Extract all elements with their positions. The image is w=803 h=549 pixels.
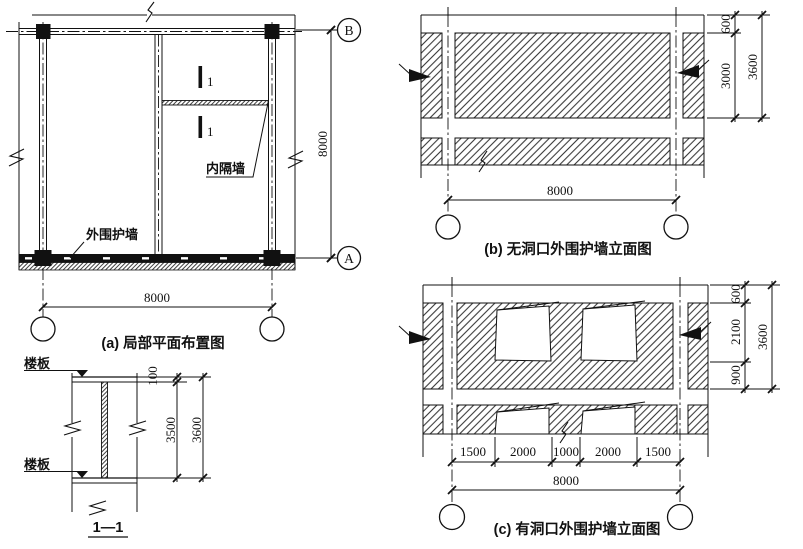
dim-c-below-window: 900 <box>728 365 743 385</box>
dim-c-story: 3600 <box>755 324 770 350</box>
plan-boundary-lines <box>9 2 303 270</box>
dim-c-belt: 600 <box>728 284 743 304</box>
axis-circle-left <box>31 317 55 341</box>
elevation-c-title: (c) 有洞口外围护墙立面图 <box>494 520 661 538</box>
elevation-c: 1500 2000 1000 2000 1500 8000 600 <box>399 277 780 538</box>
dim-clear-height: 3500 <box>163 417 178 443</box>
dim-b-panel: 3000 <box>718 63 733 89</box>
break-mark-top <box>146 2 154 22</box>
elevation-c-panels <box>423 301 708 434</box>
section-cut-bar-1 <box>199 66 203 88</box>
dim-c-seg-2: 2000 <box>510 444 536 459</box>
dim-plan-width: 8000 <box>144 290 170 305</box>
elevation-b: 8000 600 3000 3600 (b) 无洞口外围护墙立面图 <box>399 7 770 258</box>
label-slab-top: 楼板 <box>24 356 51 371</box>
axis-circle-b-right <box>664 215 688 239</box>
exterior-enclosure-wall <box>19 254 295 270</box>
plan-labels: 内隔墙 外围护墙 <box>70 103 268 258</box>
grid-bubble-a: A <box>296 247 361 270</box>
section-title-group: 1—1 <box>88 520 128 537</box>
dim-c-span: 8000 <box>553 473 579 488</box>
plan-columns <box>35 24 281 266</box>
dim-b-story: 3600 <box>745 54 760 80</box>
window-opening-1 <box>495 306 551 361</box>
elevation-b-panels <box>421 33 704 165</box>
section-1-1: 楼板 楼板 100 3500 3600 1—1 <box>24 356 211 537</box>
section-dimensions: 100 3500 3600 <box>137 366 211 482</box>
dim-plan-height: 8000 <box>315 131 330 157</box>
grid-bubble-b-label: B <box>344 23 353 38</box>
elevation-c-span-dimension: 8000 <box>448 473 684 494</box>
dim-slab-thickness: 100 <box>145 366 160 386</box>
column-top-left <box>36 24 51 39</box>
section-structure <box>64 370 146 515</box>
dim-c-seg-5: 1500 <box>645 444 671 459</box>
column-bottom-left <box>35 250 52 266</box>
axis-circle-b-left <box>436 215 460 239</box>
section-break-left <box>64 421 81 435</box>
axis-circle-right <box>260 317 284 341</box>
section-title: 1—1 <box>93 520 124 536</box>
plan-bottom-dimension: 8000 <box>31 290 284 341</box>
wall-panel-main-c <box>457 303 673 389</box>
plan-title: (a) 局部平面布置图 <box>101 334 224 352</box>
plan-vertical-dimension: 8000 <box>315 26 335 262</box>
window-opening-3 <box>495 408 549 434</box>
section-mark-label-2: 1 <box>207 124 214 139</box>
dim-b-belt: 600 <box>718 14 733 34</box>
plan-view: 1 1 内隔墙 外围护墙 B <box>6 2 361 352</box>
label-interior-wall: 内隔墙 <box>206 161 245 176</box>
window-opening-2 <box>581 305 637 361</box>
axis-circle-c-right <box>668 505 693 530</box>
elevation-b-title: (b) 无洞口外围护墙立面图 <box>484 240 652 258</box>
wall-panel-main <box>455 33 670 118</box>
break-mark-left <box>9 149 24 166</box>
dim-c-seg-3: 1000 <box>553 444 579 459</box>
level-marker-top <box>76 370 88 377</box>
section-cut-bar-2 <box>199 116 203 138</box>
axis-circle-c-left <box>440 505 465 530</box>
dim-c-window: 2100 <box>728 319 743 345</box>
section-break-bottom <box>89 501 106 515</box>
dim-c-seg-1: 1500 <box>460 444 486 459</box>
grid-bubble-b: B <box>296 19 361 42</box>
dim-story-height: 3600 <box>189 417 204 443</box>
label-exterior-wall: 外围护墙 <box>85 227 138 242</box>
window-opening-4 <box>581 407 635 434</box>
section-mark-label-1: 1 <box>207 74 214 89</box>
section-break-right <box>129 421 146 435</box>
elevation-c-segment-dimensions: 1500 2000 1000 2000 1500 <box>448 437 684 467</box>
elevation-b-span-dimension: 8000 <box>444 183 680 204</box>
section-wall-core <box>102 382 108 478</box>
column-top-right <box>265 24 280 39</box>
grid-bubble-a-label: A <box>344 251 354 266</box>
level-marker-bottom <box>76 471 88 478</box>
drawing-sheet: 1 1 内隔墙 外围护墙 B <box>0 0 803 549</box>
elevation-b-right-dimensions: 600 3000 3600 <box>707 11 770 122</box>
dim-c-seg-4: 2000 <box>595 444 621 459</box>
interior-partition-wall <box>162 101 268 106</box>
elevation-c-right-dimensions: 600 2100 900 3600 <box>710 281 780 393</box>
dim-b-span: 8000 <box>547 183 573 198</box>
architectural-drawing: 1 1 内隔墙 外围护墙 B <box>0 0 803 549</box>
column-bottom-right <box>264 250 281 266</box>
label-slab-bottom: 楼板 <box>24 457 51 472</box>
